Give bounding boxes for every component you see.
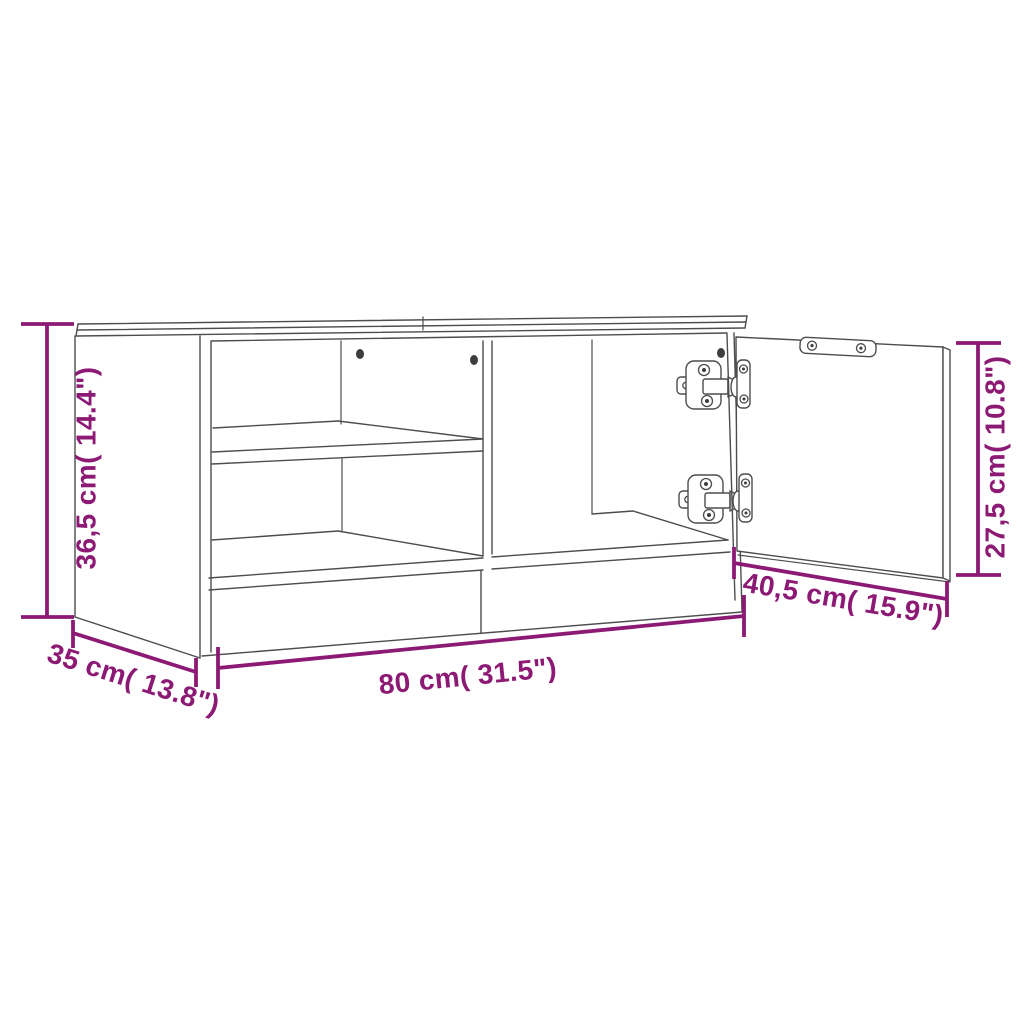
door-mounting-plate [800, 337, 877, 357]
hinge-bottom [679, 474, 752, 523]
door-width-label: 40,5 cm( 15.9") [741, 567, 946, 631]
cabinet-body [75, 316, 747, 658]
height-label: 36,5 cm( 14.4") [70, 367, 101, 570]
door-panel [736, 337, 943, 578]
dimension-depth: 35 cm( 13.8") [44, 620, 224, 721]
hinge-top [677, 360, 750, 409]
dimension-door-height: 27,5 cm( 10.8") [956, 343, 1010, 575]
center-divider [483, 341, 492, 556]
product-dimension-image: 36,5 cm( 14.4") 27,5 cm( 10.8") 80 cm( 3… [0, 0, 1024, 1024]
door-edge-thickness [943, 347, 950, 581]
width-label: 80 cm( 31.5") [377, 652, 558, 701]
interior-corner-lines [341, 340, 592, 532]
dimension-height: 36,5 cm( 14.4") [21, 324, 101, 617]
shelf [212, 421, 483, 464]
cabinet-diagram: 36,5 cm( 14.4") 27,5 cm( 10.8") 80 cm( 3… [0, 0, 1024, 1024]
bottom-panel [209, 511, 730, 590]
door-height-label: 27,5 cm( 10.8") [979, 356, 1010, 559]
open-door [677, 337, 950, 582]
back-panel-screw-holes [356, 348, 725, 365]
top-panel [76, 316, 747, 341]
